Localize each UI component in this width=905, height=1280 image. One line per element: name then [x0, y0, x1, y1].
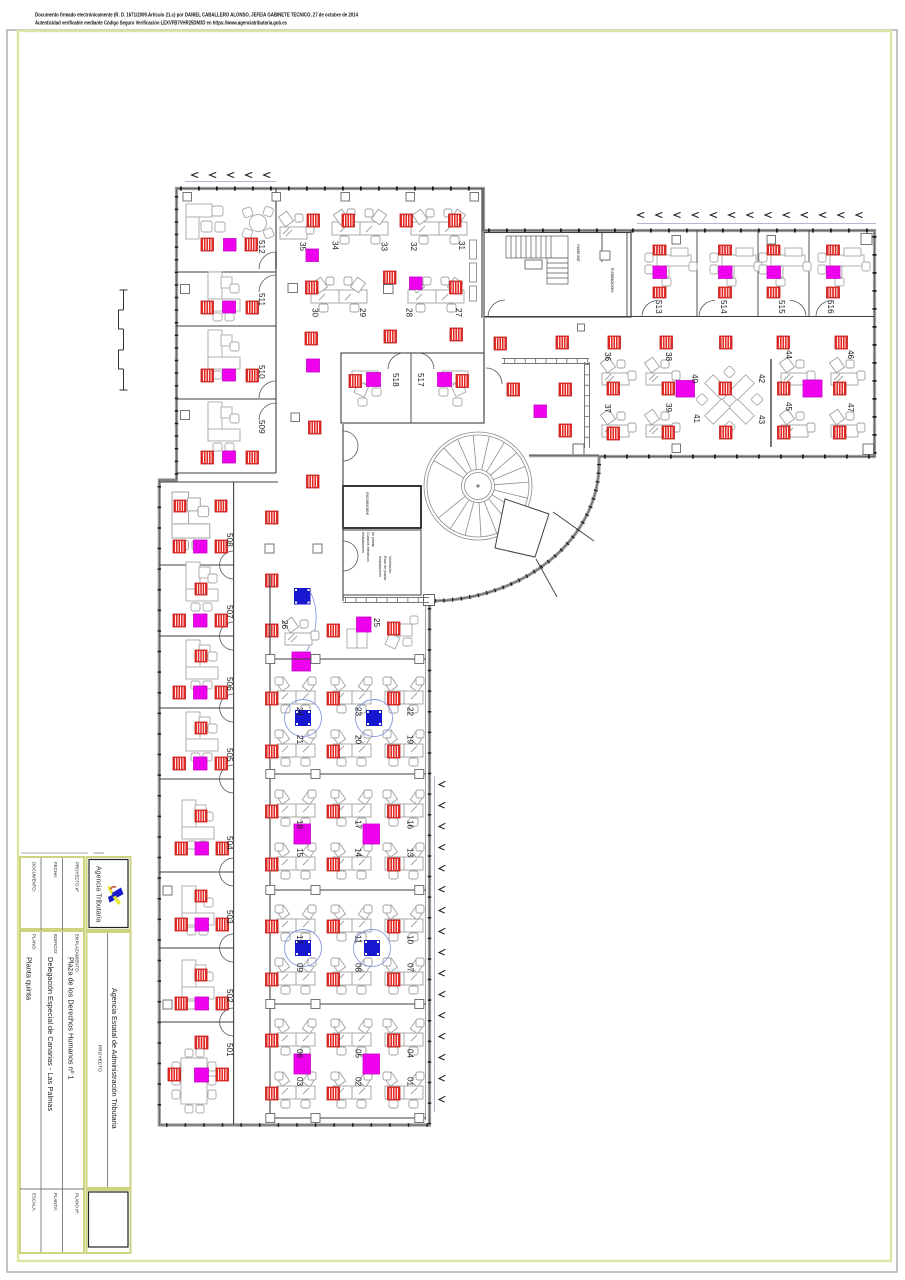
svg-text:38: 38	[664, 352, 673, 362]
svg-text:46: 46	[846, 350, 855, 360]
svg-text:08: 08	[354, 963, 363, 973]
svg-text:502: 502	[225, 989, 234, 1003]
svg-text:18: 18	[295, 820, 304, 830]
svg-text:Agencia Estatal de Administrac: Agencia Estatal de Administración Tribut…	[110, 988, 119, 1129]
svg-text:PROYECTO nº: PROYECTO nº	[75, 862, 80, 892]
svg-text:05: 05	[354, 1049, 363, 1059]
svg-text:Instalaciones: Instalaciones	[361, 532, 365, 553]
svg-text:501: 501	[225, 1043, 234, 1057]
svg-text:04: 04	[406, 1049, 415, 1059]
svg-text:504: 504	[225, 836, 234, 850]
svg-text:21: 21	[295, 735, 304, 745]
svg-text:PLANO:: PLANO:	[32, 934, 37, 950]
svg-text:Ascensores: Ascensores	[365, 492, 370, 516]
svg-text:09: 09	[295, 963, 304, 973]
svg-text:11: 11	[354, 935, 363, 944]
svg-text:42: 42	[757, 374, 766, 384]
svg-text:Agencia Tributaria: Agencia Tributaria	[95, 866, 102, 923]
svg-text:507: 507	[225, 605, 234, 619]
svg-text:Instalaciones: Instalaciones	[378, 556, 382, 577]
svg-text:41: 41	[692, 414, 701, 424]
svg-text:508: 508	[225, 533, 234, 547]
svg-text:31: 31	[457, 241, 466, 251]
svg-text:30: 30	[311, 308, 320, 318]
svg-text:Rack de planta: Rack de planta	[383, 556, 387, 580]
svg-text:Documento firmado electrónicam: Documento firmado electrónicamente (R. D…	[35, 13, 358, 19]
svg-text:506: 506	[225, 677, 234, 691]
svg-text:de planta: de planta	[371, 532, 375, 547]
svg-text:PROYECTO: PROYECTO	[97, 1045, 103, 1072]
svg-text:512: 512	[257, 240, 266, 254]
svg-text:PLANTA:: PLANTA:	[53, 1193, 58, 1211]
svg-text:14: 14	[354, 848, 363, 858]
svg-text:44: 44	[784, 350, 793, 360]
svg-text:01: 01	[406, 1077, 415, 1087]
svg-text:32: 32	[409, 242, 418, 252]
svg-text:515: 515	[777, 300, 786, 314]
svg-text:510: 510	[257, 365, 266, 379]
svg-text:33: 33	[380, 242, 389, 252]
svg-text:43: 43	[757, 415, 766, 425]
svg-text:ESCALA:: ESCALA:	[32, 1193, 37, 1212]
svg-text:509: 509	[257, 420, 266, 434]
svg-text:07: 07	[406, 963, 415, 973]
svg-text:37: 37	[603, 404, 612, 414]
svg-text:Ventilación: Ventilación	[388, 556, 392, 573]
svg-text:39: 39	[664, 403, 673, 413]
svg-text:Instalaciones: Instalaciones	[610, 268, 615, 292]
svg-text:47: 47	[846, 403, 855, 413]
svg-text:29: 29	[358, 308, 367, 318]
svg-text:24: 24	[295, 707, 304, 717]
svg-text:28: 28	[405, 308, 414, 318]
svg-text:15: 15	[295, 848, 304, 858]
svg-text:25: 25	[372, 618, 381, 628]
svg-text:516: 516	[826, 300, 835, 314]
svg-text:518: 518	[391, 373, 400, 387]
svg-text:Planta quinta: Planta quinta	[25, 957, 34, 1001]
svg-text:19: 19	[406, 735, 415, 745]
svg-text:45: 45	[784, 402, 793, 412]
svg-text:13: 13	[406, 848, 415, 858]
svg-text:34: 34	[331, 241, 340, 251]
svg-text:511: 511	[257, 293, 266, 306]
svg-text:505: 505	[225, 748, 234, 762]
svg-text:Delegación Especial de Canaria: Delegación Especial de Canarias - Las Pa…	[46, 957, 55, 1111]
svg-text:03: 03	[295, 1077, 304, 1087]
svg-text:FECHA:: FECHA:	[53, 862, 58, 878]
svg-text:Plaza de los Derechos Humanos: Plaza de los Derechos Humanos nº 1	[67, 957, 76, 1080]
svg-text:17: 17	[354, 820, 363, 830]
svg-text:26: 26	[280, 620, 289, 630]
svg-text:16: 16	[406, 820, 415, 830]
svg-text:503: 503	[225, 910, 234, 924]
svg-text:06: 06	[295, 1049, 304, 1059]
svg-text:12: 12	[295, 935, 304, 945]
svg-text:40: 40	[690, 374, 699, 384]
svg-text:517: 517	[416, 373, 425, 387]
svg-text:22: 22	[406, 707, 415, 717]
svg-text:Autenticidad verificable media: Autenticidad verificable mediante Código…	[35, 21, 287, 27]
svg-text:Ascensor: Ascensor	[576, 244, 581, 262]
svg-text:27: 27	[454, 308, 463, 318]
svg-text:23: 23	[354, 707, 363, 717]
svg-text:36: 36	[603, 352, 612, 362]
svg-text:514: 514	[719, 300, 728, 314]
svg-text:EDIFICIO:: EDIFICIO:	[53, 934, 58, 954]
svg-text:20: 20	[354, 735, 363, 745]
svg-text:Cuadros eléctricos: Cuadros eléctricos	[366, 532, 370, 562]
svg-text:513: 513	[654, 300, 663, 314]
svg-text:PLANO nº:: PLANO nº:	[75, 1193, 80, 1214]
svg-text:DOCUMENTO:: DOCUMENTO:	[32, 862, 37, 892]
svg-text:02: 02	[354, 1077, 363, 1087]
svg-text:10: 10	[406, 935, 415, 945]
